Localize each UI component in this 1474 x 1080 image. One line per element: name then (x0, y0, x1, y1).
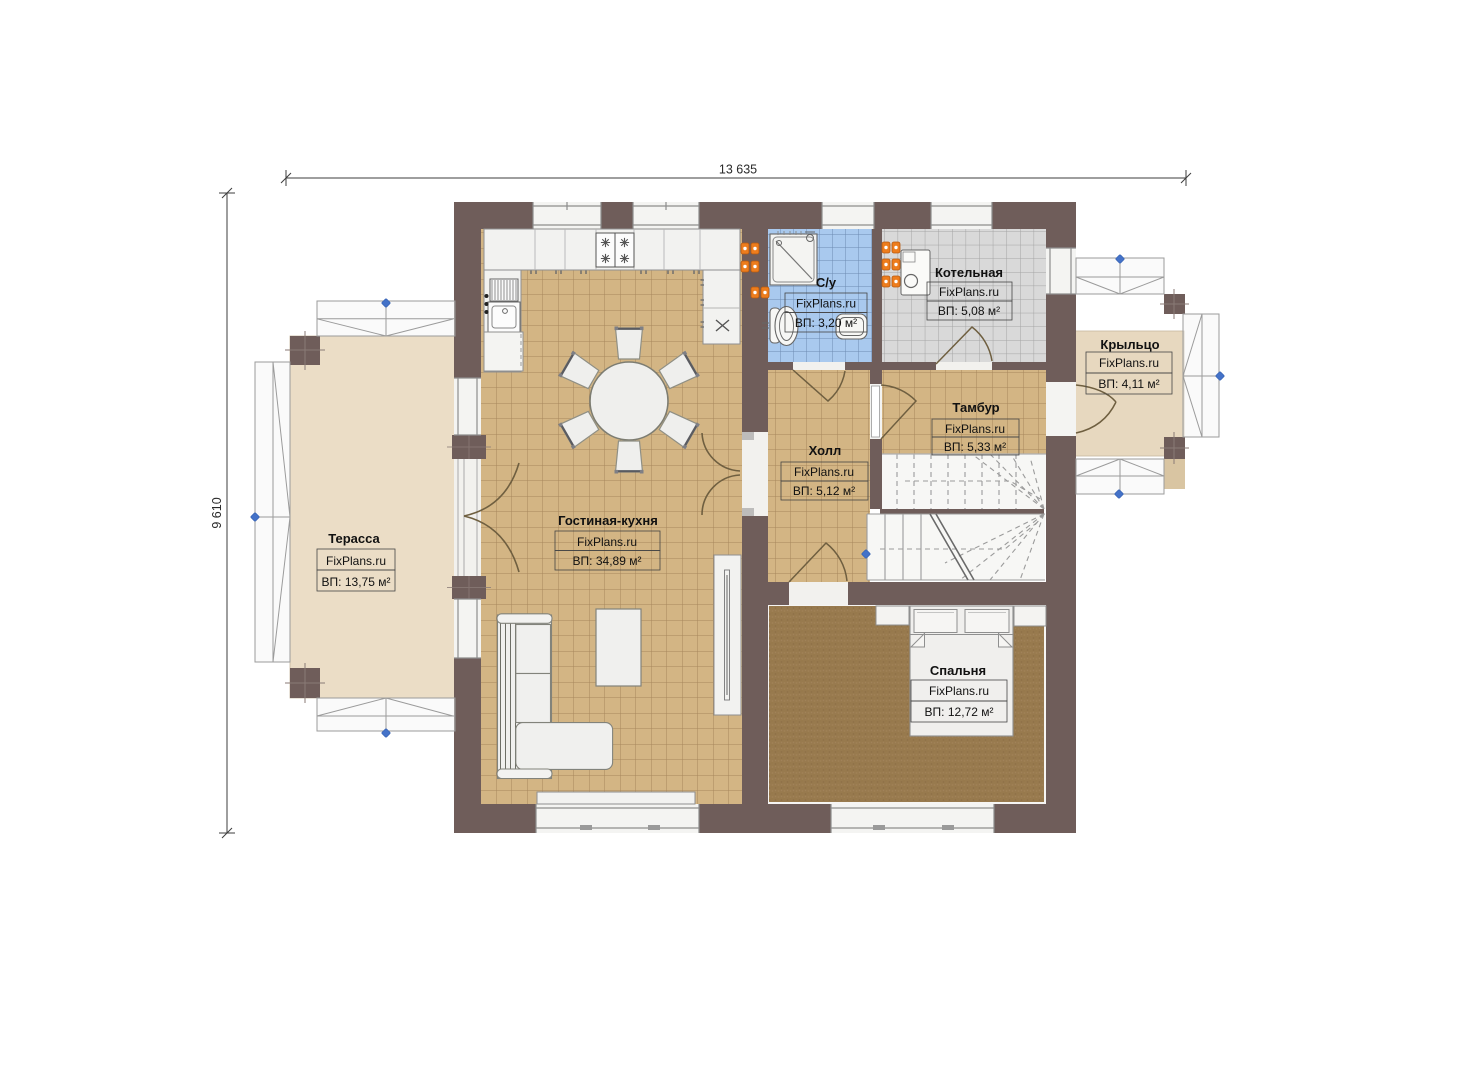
svg-text:FixPlans.ru: FixPlans.ru (796, 297, 856, 311)
svg-text:ВП: 13,75 м²: ВП: 13,75 м² (322, 575, 391, 589)
svg-text:FixPlans.ru: FixPlans.ru (794, 465, 854, 479)
svg-text:ВП: 5,33 м²: ВП: 5,33 м² (944, 440, 1006, 454)
svg-text:Гостиная-кухня: Гостиная-кухня (558, 513, 658, 528)
svg-text:Холл: Холл (809, 443, 842, 458)
svg-text:ВП: 5,12 м²: ВП: 5,12 м² (793, 484, 855, 498)
svg-text:ВП: 5,08 м²: ВП: 5,08 м² (938, 304, 1000, 318)
svg-text:ВП: 12,72 м²: ВП: 12,72 м² (925, 705, 994, 719)
svg-text:Крыльцо: Крыльцо (1100, 337, 1159, 352)
svg-text:FixPlans.ru: FixPlans.ru (577, 535, 637, 549)
svg-text:Котельная: Котельная (935, 265, 1003, 280)
svg-text:ВП: 34,89 м²: ВП: 34,89 м² (573, 554, 642, 568)
svg-text:FixPlans.ru: FixPlans.ru (929, 684, 989, 698)
svg-text:ВП: 3,20 м²: ВП: 3,20 м² (795, 316, 857, 330)
svg-text:Спальня: Спальня (930, 663, 986, 678)
svg-text:13 635: 13 635 (719, 163, 757, 177)
svg-text:ВП: 4,11 м²: ВП: 4,11 м² (1098, 377, 1159, 391)
svg-text:9 610: 9 610 (210, 497, 224, 528)
svg-text:С/у: С/у (816, 275, 837, 290)
svg-text:FixPlans.ru: FixPlans.ru (1099, 356, 1159, 370)
svg-text:FixPlans.ru: FixPlans.ru (939, 285, 999, 299)
svg-text:Терасса: Терасса (328, 531, 380, 546)
svg-text:Тамбур: Тамбур (952, 400, 999, 415)
svg-text:FixPlans.ru: FixPlans.ru (326, 554, 386, 568)
svg-text:FixPlans.ru: FixPlans.ru (945, 422, 1005, 436)
